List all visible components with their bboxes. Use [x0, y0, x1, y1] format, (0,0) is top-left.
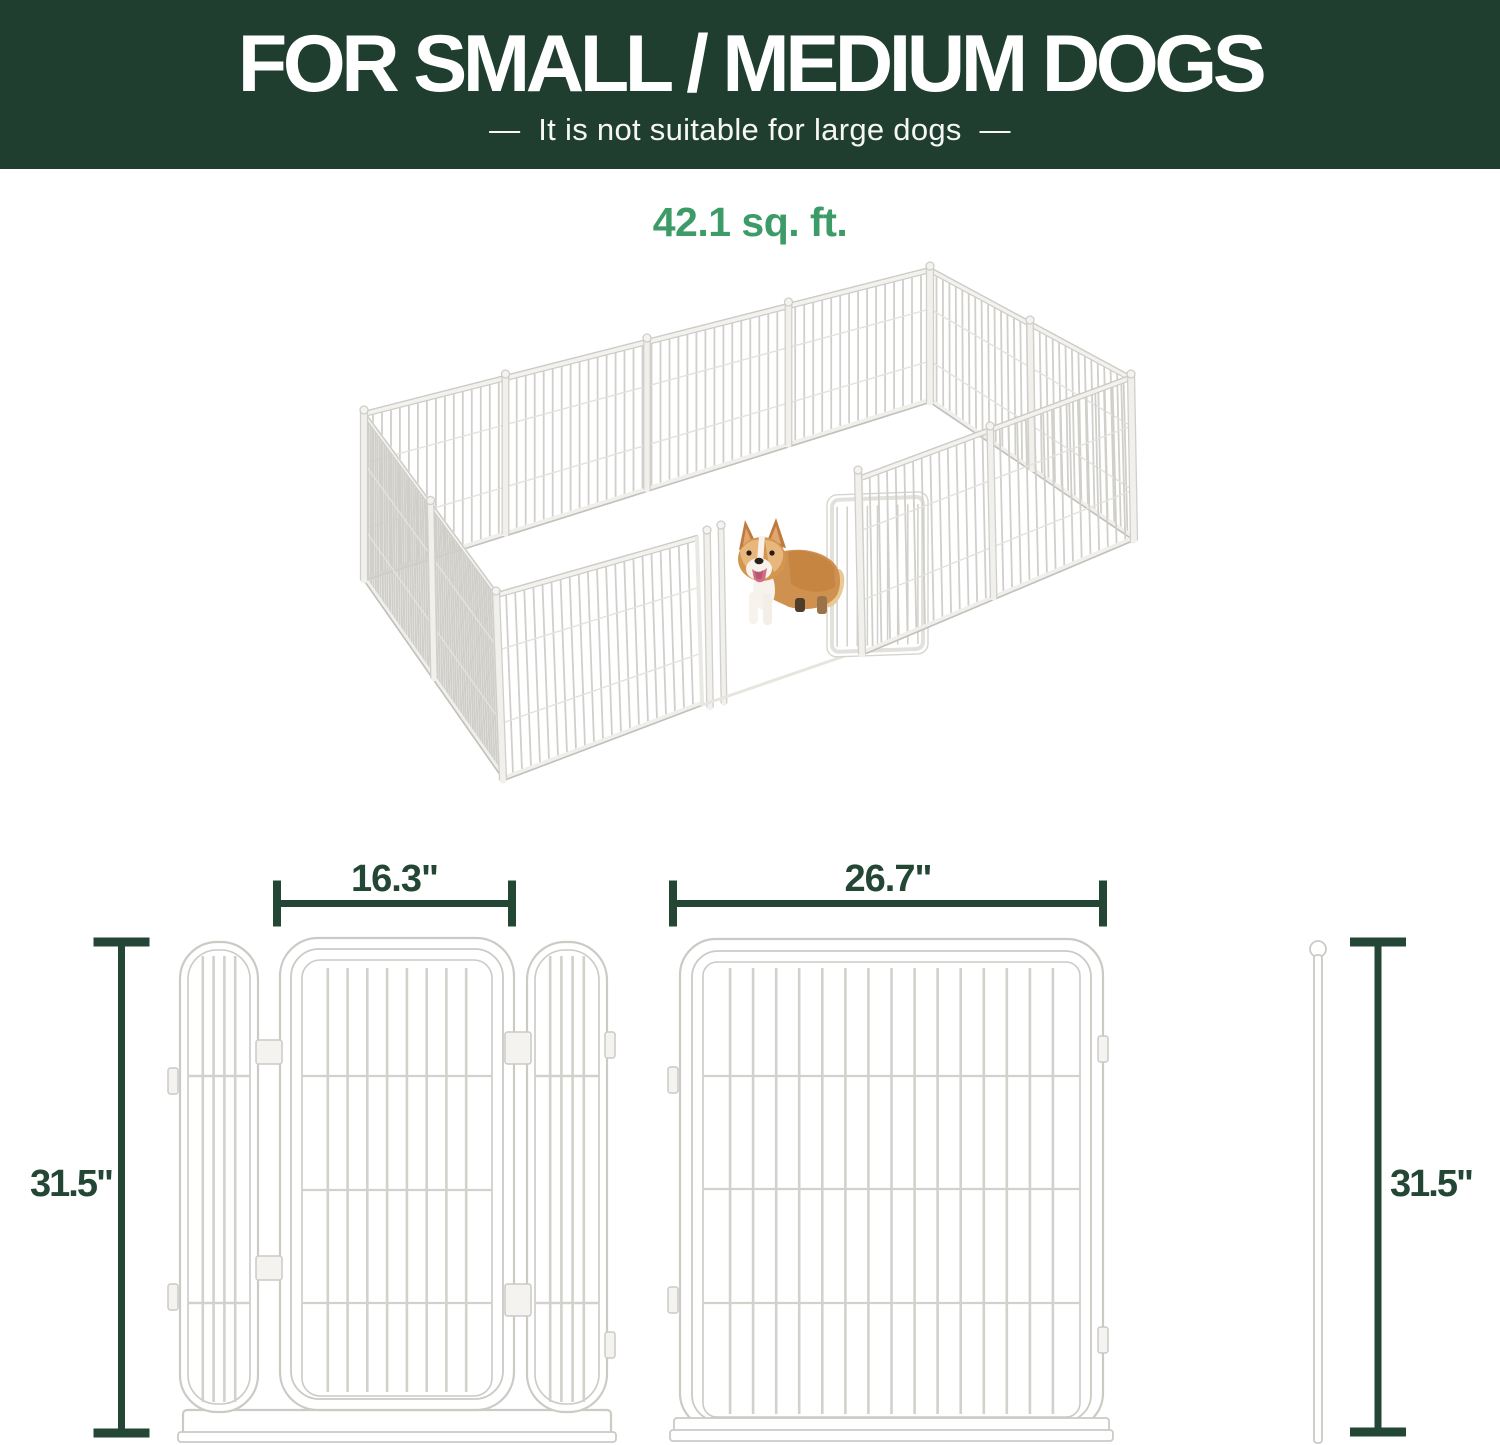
svg-text:16.3": 16.3" [351, 858, 438, 900]
svg-text:26.7": 26.7" [845, 858, 932, 900]
svg-text:31.5": 31.5" [30, 1163, 112, 1205]
svg-text:31.5": 31.5" [1390, 1163, 1472, 1205]
